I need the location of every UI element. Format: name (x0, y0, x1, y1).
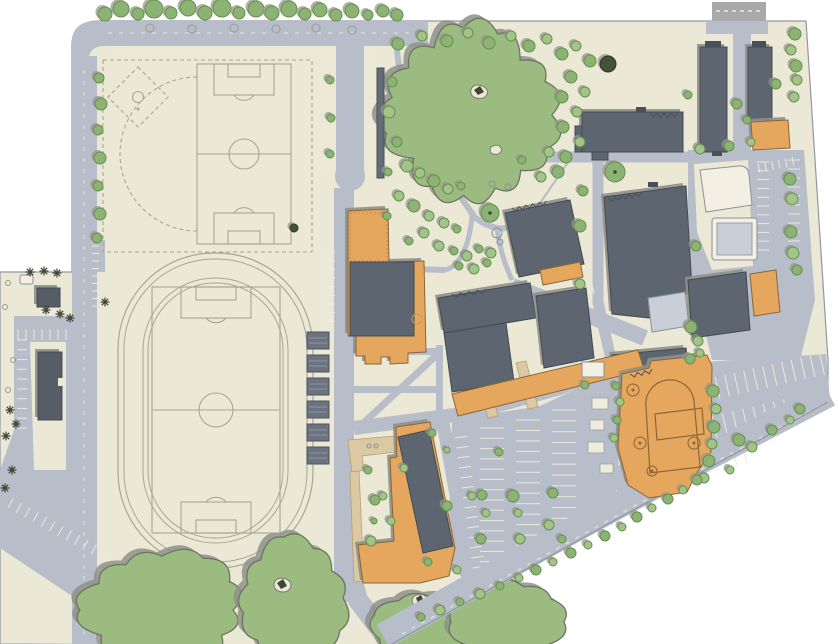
tree (600, 56, 616, 72)
tree (281, 1, 297, 17)
tree (92, 233, 102, 243)
palm-plant-icon (8, 466, 17, 475)
tree (417, 31, 427, 41)
tree (552, 166, 564, 178)
tree (565, 71, 577, 83)
tree (786, 193, 798, 205)
tree (785, 226, 797, 238)
roof-cap-5 (648, 182, 658, 187)
bleacher-section[interactable] (307, 401, 329, 418)
gym-skylight-3-dot (651, 470, 654, 473)
ballwall-structure (377, 68, 384, 178)
tree (515, 534, 525, 544)
tree (483, 259, 491, 267)
tree (507, 490, 519, 502)
tree (536, 172, 546, 182)
campus-map-stage (0, 0, 838, 644)
tree (453, 225, 461, 233)
shed-west (20, 275, 33, 284)
tree (180, 0, 196, 16)
palm-plant-icon (53, 269, 62, 278)
tree (724, 141, 734, 151)
tree (556, 48, 568, 60)
gym-skylight-1-dot (632, 389, 635, 392)
gym-pad-4 (600, 464, 613, 473)
tree (94, 208, 106, 220)
tree (377, 5, 389, 17)
palm-plant-icon (12, 420, 21, 429)
bleacher-section[interactable] (307, 378, 329, 395)
tree (392, 38, 404, 50)
tree (345, 4, 359, 18)
tree (784, 173, 796, 185)
palm-plant-icon (42, 306, 51, 315)
tree (571, 41, 581, 51)
maintenance-shed-gym (582, 362, 604, 377)
tree-center-dot (488, 211, 492, 215)
bleacher-section[interactable] (307, 447, 329, 464)
tree (726, 466, 734, 474)
tree (94, 73, 104, 83)
gym-skylight-2-dot (639, 442, 642, 445)
tree (379, 492, 387, 500)
road-north-drive (336, 45, 364, 173)
tree (450, 247, 458, 255)
grove-hole-2 (490, 145, 502, 154)
tree (394, 191, 404, 201)
tree (711, 404, 721, 414)
tree (663, 494, 673, 504)
tree (248, 1, 264, 17)
tree (685, 354, 695, 364)
tree (613, 416, 621, 424)
tree (685, 321, 697, 333)
tree (391, 9, 403, 21)
tree (578, 186, 588, 196)
tree (792, 75, 802, 85)
tree (542, 34, 552, 44)
tree (419, 228, 429, 238)
tree (198, 6, 212, 20)
tree (557, 121, 569, 133)
service-building-west-notch (58, 378, 63, 386)
tree (384, 168, 392, 176)
gym-pad-3 (588, 442, 604, 453)
tree (443, 184, 453, 194)
tree (514, 509, 522, 517)
tree (477, 490, 487, 500)
tree (387, 77, 397, 87)
tree (363, 10, 373, 20)
palm-plant-icon (1, 484, 10, 493)
tree (383, 212, 391, 220)
gym-pad-2 (590, 420, 604, 430)
tree (326, 150, 334, 158)
tree (483, 37, 495, 49)
tree (584, 55, 596, 67)
tree (475, 245, 483, 253)
campus-map (0, 0, 838, 644)
tree (400, 464, 408, 472)
tree (439, 218, 449, 228)
tree (441, 35, 453, 47)
tree (326, 76, 334, 84)
tree (506, 31, 516, 41)
tree (560, 151, 572, 163)
bleacher-section[interactable] (307, 424, 329, 441)
tree (424, 211, 434, 221)
tree (486, 248, 496, 258)
baseball-plate (137, 108, 140, 111)
tree (544, 520, 554, 530)
tree (313, 3, 327, 17)
roof-cap-4 (636, 107, 646, 112)
tree (574, 220, 586, 232)
tree (401, 160, 413, 172)
tree (558, 535, 566, 543)
gym-skylight-4-dot (693, 442, 696, 445)
tree (330, 9, 342, 21)
kiosk-west (37, 288, 60, 307)
tree (679, 486, 687, 494)
tree (482, 509, 490, 517)
palm-plant-icon (66, 314, 75, 323)
tree (392, 137, 402, 147)
palm-plant-icon (6, 406, 15, 415)
hall-north-main[interactable] (582, 112, 683, 152)
arts-building-roof (350, 262, 414, 336)
palm-plant-icon (2, 432, 11, 441)
tree (290, 224, 298, 232)
tree (693, 336, 703, 346)
tree (457, 182, 465, 190)
road-north-culdesac (335, 161, 365, 191)
tree (556, 91, 568, 103)
hall-east-orange (750, 270, 780, 316)
tree (767, 425, 777, 435)
tree (518, 156, 526, 164)
tree (789, 92, 799, 102)
roof-cap-3 (752, 41, 766, 47)
annex-northeast-orange[interactable] (751, 120, 790, 150)
tree (703, 455, 715, 467)
tree (424, 558, 432, 566)
tree (98, 7, 112, 21)
tree (132, 8, 144, 20)
palm-plant-icon (101, 298, 110, 307)
tree (548, 488, 558, 498)
tree (364, 466, 372, 474)
tree (435, 605, 445, 615)
tree (531, 565, 541, 575)
tree (444, 447, 450, 453)
tree (549, 558, 557, 566)
tree (442, 501, 452, 511)
tree (584, 541, 592, 549)
residence-hall-north-1[interactable] (700, 47, 727, 152)
tree (265, 6, 279, 20)
tree (610, 434, 618, 442)
palm-plant-icon (56, 310, 65, 319)
tree (113, 1, 129, 17)
tree (523, 40, 535, 52)
tree (691, 241, 701, 251)
union-east-block[interactable] (536, 288, 594, 368)
tree (515, 574, 523, 582)
tree (632, 512, 642, 522)
tree (233, 7, 245, 19)
tree (789, 28, 801, 40)
tree (600, 531, 610, 541)
tree (387, 517, 395, 525)
tree (475, 589, 485, 599)
tree (495, 448, 503, 456)
tree (462, 251, 472, 261)
tree (743, 116, 751, 124)
tree (453, 566, 461, 574)
tree (786, 45, 796, 55)
tree (94, 152, 106, 164)
tree (795, 404, 805, 414)
tree (455, 262, 463, 270)
tree (648, 504, 656, 512)
tree (707, 385, 719, 397)
palm-plant-icon (26, 268, 35, 277)
tree (327, 114, 335, 122)
tree (165, 7, 177, 19)
bleacher-section[interactable] (307, 332, 329, 349)
roof-cap-1 (705, 41, 721, 47)
tree (415, 168, 425, 178)
palm-plant-icon (40, 267, 49, 276)
tree (428, 429, 436, 437)
tree (575, 137, 585, 147)
future-building-1[interactable] (700, 166, 752, 212)
tree (405, 237, 413, 245)
bleacher-section[interactable] (307, 355, 329, 372)
tree (732, 99, 742, 109)
gym-pad-1 (592, 398, 608, 409)
tree (692, 475, 702, 485)
tree (747, 442, 757, 452)
tree (707, 439, 717, 449)
tree (434, 241, 444, 251)
tree (456, 598, 464, 606)
tree (93, 125, 103, 135)
tree (463, 28, 473, 38)
tree (572, 107, 582, 117)
tree (469, 264, 479, 274)
tree (616, 398, 624, 406)
tree (496, 582, 504, 590)
tree (417, 613, 425, 621)
tree (696, 349, 704, 357)
tree (544, 147, 554, 157)
tree (213, 0, 231, 17)
residence-hall-north-2[interactable] (748, 47, 772, 120)
tree (733, 434, 745, 446)
roof-cap-2 (712, 151, 722, 156)
tree (371, 518, 377, 524)
tree (383, 106, 395, 118)
tree (580, 87, 590, 97)
tree (408, 200, 420, 212)
tree (612, 382, 620, 390)
tree-center-dot (613, 170, 617, 174)
future-building-2-inner (717, 223, 752, 255)
tree (476, 534, 486, 544)
road-west-bump (96, 240, 105, 272)
tree (792, 265, 802, 275)
tree (581, 381, 589, 389)
tree (145, 0, 163, 18)
tree (366, 536, 376, 546)
hall-north-stub (592, 152, 608, 160)
tree (618, 523, 626, 531)
tree (790, 60, 802, 72)
tree (575, 279, 585, 289)
tree (684, 91, 692, 99)
tree (95, 98, 107, 110)
tree (771, 79, 781, 89)
tree (708, 421, 720, 433)
tree (299, 8, 311, 20)
tree (428, 175, 440, 187)
tree (787, 247, 799, 259)
tree (786, 416, 794, 424)
tree (93, 181, 103, 191)
tree (695, 144, 705, 154)
tree (747, 138, 755, 146)
tree (566, 548, 576, 558)
